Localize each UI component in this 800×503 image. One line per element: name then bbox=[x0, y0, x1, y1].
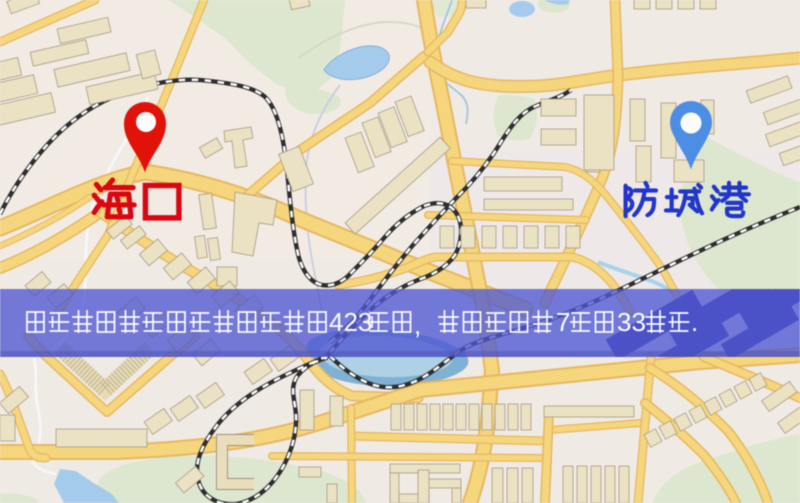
svg-text:7: 7 bbox=[556, 307, 570, 337]
svg-text:33: 33 bbox=[617, 307, 646, 337]
svg-text:.: . bbox=[691, 307, 698, 337]
svg-text:423: 423 bbox=[329, 307, 372, 337]
svg-text:,: , bbox=[414, 310, 421, 340]
